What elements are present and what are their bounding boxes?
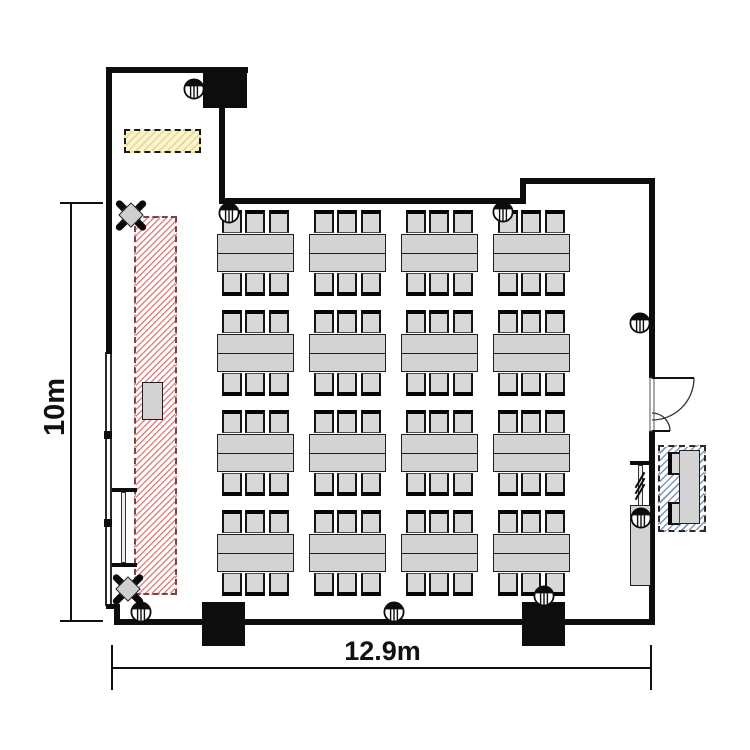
height-dimension-label: 10m (40, 376, 70, 438)
spotlight-icon (109, 193, 153, 237)
dimension-tick (111, 645, 113, 690)
dimension-tick (60, 202, 103, 204)
dimension-tick (60, 620, 103, 622)
floor-plan-canvas: 10m 12.9m (0, 0, 750, 750)
dimension-tick (650, 645, 652, 690)
width-dimension-label: 12.9m (312, 636, 453, 666)
wall-fixture-icon (218, 202, 240, 224)
dimension-line-horizontal (112, 667, 651, 669)
wall-fixture-icon (383, 601, 405, 623)
wall-fixture-icon (629, 312, 651, 334)
wall-fixture-icon (533, 585, 555, 607)
spotlight-icon (106, 567, 150, 611)
wall-fixture-icon (183, 78, 205, 100)
wall-fixture-icon (492, 201, 514, 223)
wall-fixture-icon (630, 507, 652, 529)
